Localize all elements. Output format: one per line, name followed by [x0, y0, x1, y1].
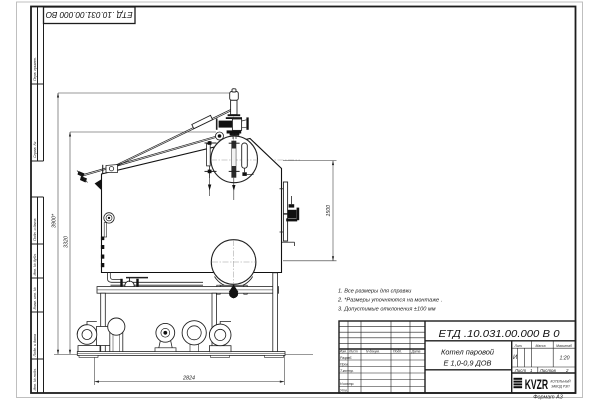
svg-text:1. Все размеры для справки: 1. Все размеры для справки — [338, 289, 411, 295]
svg-text:ЕТД .10.031.00.000 ВО: ЕТД .10.031.00.000 ВО — [45, 10, 133, 19]
svg-text:2. *Размеры уточняются на мон: 2. *Размеры уточняются на монтаже . — [337, 298, 442, 304]
svg-text:ЗАВОД РЭП: ЗАВОД РЭП — [551, 384, 570, 388]
svg-text:Дата: Дата — [411, 350, 421, 354]
svg-text:Инв. № дубл.: Инв. № дубл. — [33, 253, 37, 275]
svg-text:Подп. и дата: Подп. и дата — [33, 219, 37, 242]
svg-text:Е 1,0-0,9 ДОВ: Е 1,0-0,9 ДОВ — [444, 359, 492, 368]
svg-text:Т.контр.: Т.контр. — [340, 369, 354, 373]
svg-text:Лист: Лист — [514, 368, 527, 373]
svg-text:Масса: Масса — [535, 344, 545, 348]
svg-text:Разраб.: Разраб. — [340, 356, 352, 360]
svg-text:3900*: 3900* — [52, 213, 58, 228]
svg-text:KVZR: KVZR — [525, 376, 548, 392]
svg-text:Изм.: Изм. — [340, 350, 347, 354]
svg-text:Пров.: Пров. — [340, 362, 349, 366]
svg-text:Формат А3: Формат А3 — [533, 395, 563, 400]
svg-text:2824: 2824 — [182, 375, 195, 381]
svg-text:N докум.: N докум. — [366, 350, 380, 354]
svg-text:3320: 3320 — [64, 236, 70, 248]
svg-text:ЕТД .10.031.00.000 В 0: ЕТД .10.031.00.000 В 0 — [439, 329, 560, 340]
svg-text:Н.контр.: Н.контр. — [340, 382, 354, 386]
svg-text:1500: 1500 — [326, 205, 332, 217]
svg-text:Справ. №: Справ. № — [33, 142, 37, 158]
svg-text:Котел паровой: Котел паровой — [441, 347, 494, 356]
svg-text:Лит.: Лит. — [514, 344, 523, 348]
svg-text:Инв. № подл.: Инв. № подл. — [33, 368, 37, 390]
svg-text:Масштаб: Масштаб — [556, 344, 572, 348]
svg-text:Перв. примен.: Перв. примен. — [33, 57, 37, 81]
svg-text:Листов: Листов — [539, 368, 557, 373]
svg-text:И: И — [513, 355, 518, 361]
svg-text:1:20: 1:20 — [559, 356, 569, 362]
svg-text:2: 2 — [565, 368, 569, 373]
svg-text:Подп.: Подп. — [393, 350, 402, 354]
svg-text:КОТЕЛЬНЫЙ: КОТЕЛЬНЫЙ — [551, 380, 572, 384]
svg-text:Взам. инв. №: Взам. инв. № — [33, 287, 37, 309]
svg-text:Утв.: Утв. — [340, 388, 348, 392]
svg-text:Подп. и дата: Подп. и дата — [33, 334, 37, 357]
svg-text:Лист: Лист — [348, 350, 358, 354]
svg-text:3. Допустимые отклонения ±10: 3. Допустимые отклонения ±100 мм — [338, 307, 436, 313]
